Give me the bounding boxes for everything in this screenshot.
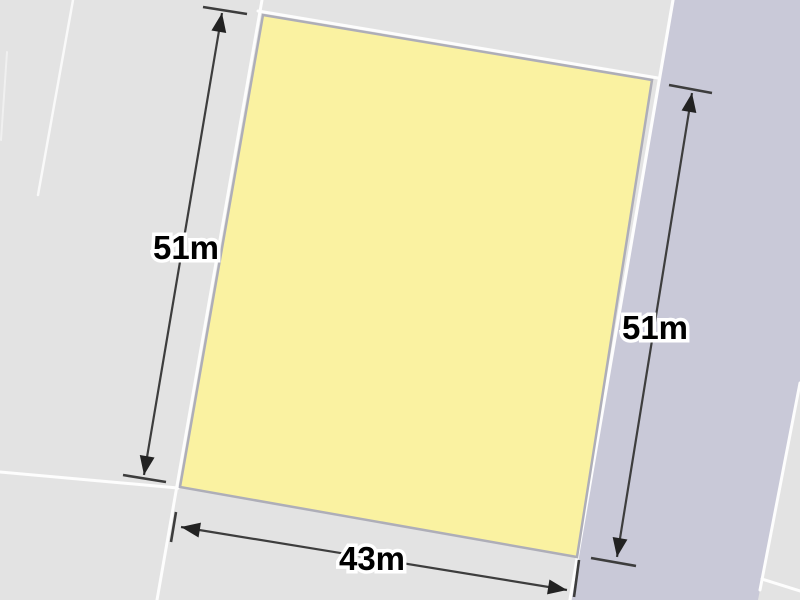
- dimension-label-left: 51m: [153, 229, 219, 266]
- real-estate-map-view: 51m 51m 43m: [0, 0, 800, 600]
- map-canvas: 51m 51m 43m: [0, 0, 800, 600]
- highlighted-parcel: [180, 15, 652, 557]
- dimension-label-right: 51m: [622, 309, 688, 346]
- dimension-label-bottom: 43m: [339, 540, 405, 577]
